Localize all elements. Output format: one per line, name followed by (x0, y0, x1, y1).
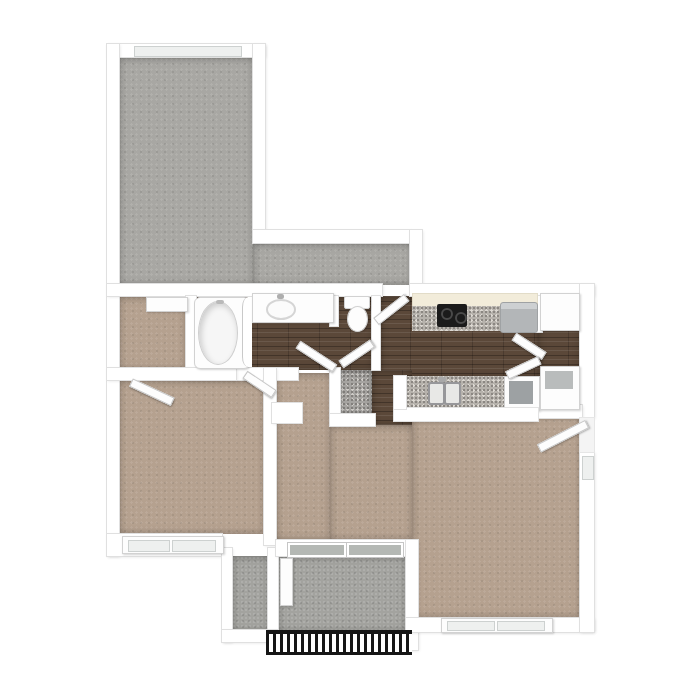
entry-tile-floor (338, 370, 372, 416)
balcony-window-pane-left (288, 543, 346, 557)
peninsula-end-panel (394, 376, 406, 409)
kitchen-appliance-top (509, 381, 533, 404)
vanity-faucet (277, 294, 284, 299)
toilet-bowl (347, 306, 368, 332)
kitchen-faucet (438, 377, 446, 382)
stove-burner-2 (455, 312, 467, 324)
kitchen-sink-basin-right (444, 382, 461, 405)
floor-plan-canvas (0, 0, 697, 697)
balcony-floor (278, 556, 406, 632)
wall-hall-stub (272, 403, 302, 423)
peninsula-cabinet-face (394, 408, 538, 421)
wall-left-outer (107, 44, 119, 556)
wall-bedroom-top (107, 368, 236, 380)
vanity-sink (266, 299, 296, 320)
bedroom-floor (119, 380, 264, 534)
balcony-door-leaf (280, 558, 293, 606)
wall-middle-band-left (107, 284, 382, 296)
laundry-washer (540, 293, 580, 331)
wall-bonus-right (253, 44, 265, 243)
living-window-pane-right (497, 621, 545, 631)
wall-entrytile-left (330, 368, 340, 418)
bonus-room-window (134, 46, 242, 57)
kitchen-sink-basin-left (428, 382, 445, 405)
closet-shelf (146, 297, 188, 312)
side-entry-window (582, 456, 594, 480)
wall-entrytile-bottom (330, 414, 375, 426)
hallway-floor (276, 373, 330, 540)
bedroom-window-pane-right (172, 540, 216, 552)
shower-curtain (242, 297, 252, 367)
bonus-room-floor-vertical (119, 57, 253, 285)
wall-storage-left (222, 548, 232, 642)
bathtub-basin (198, 301, 238, 365)
balcony-window-pane-right (347, 543, 403, 557)
balcony-railing (266, 630, 412, 655)
dining-floor (330, 425, 412, 540)
bonus-room-floor-horizontal (253, 243, 411, 285)
tub-faucet (216, 300, 224, 304)
stove-burner-1 (441, 308, 453, 320)
living-window-pane-left (447, 621, 495, 631)
refrigerator (500, 302, 538, 333)
storage-closet-floor (232, 556, 268, 632)
laundry-dryer-recess (545, 371, 573, 389)
bedroom-window-pane-left (128, 540, 170, 552)
wall-bonus-leg-top (253, 230, 411, 243)
wall-right-upper (580, 284, 594, 418)
wall-bathroom-kitchen (372, 296, 380, 370)
